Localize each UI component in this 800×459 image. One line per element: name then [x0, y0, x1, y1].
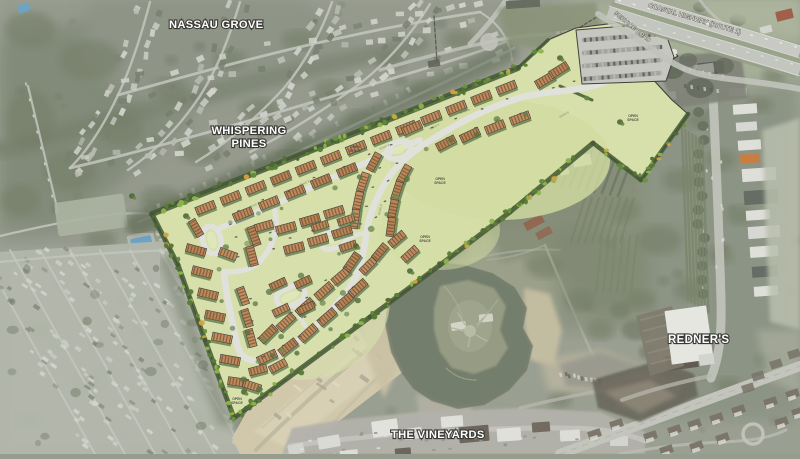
svg-text:NASSAU GROVE: NASSAU GROVE	[169, 19, 264, 31]
svg-text:WHISPERING: WHISPERING	[211, 125, 286, 137]
svg-text:REDNER'S: REDNER'S	[668, 334, 729, 346]
svg-text:PINES: PINES	[231, 138, 266, 150]
svg-text:THE VINEYARDS: THE VINEYARDS	[391, 429, 485, 441]
